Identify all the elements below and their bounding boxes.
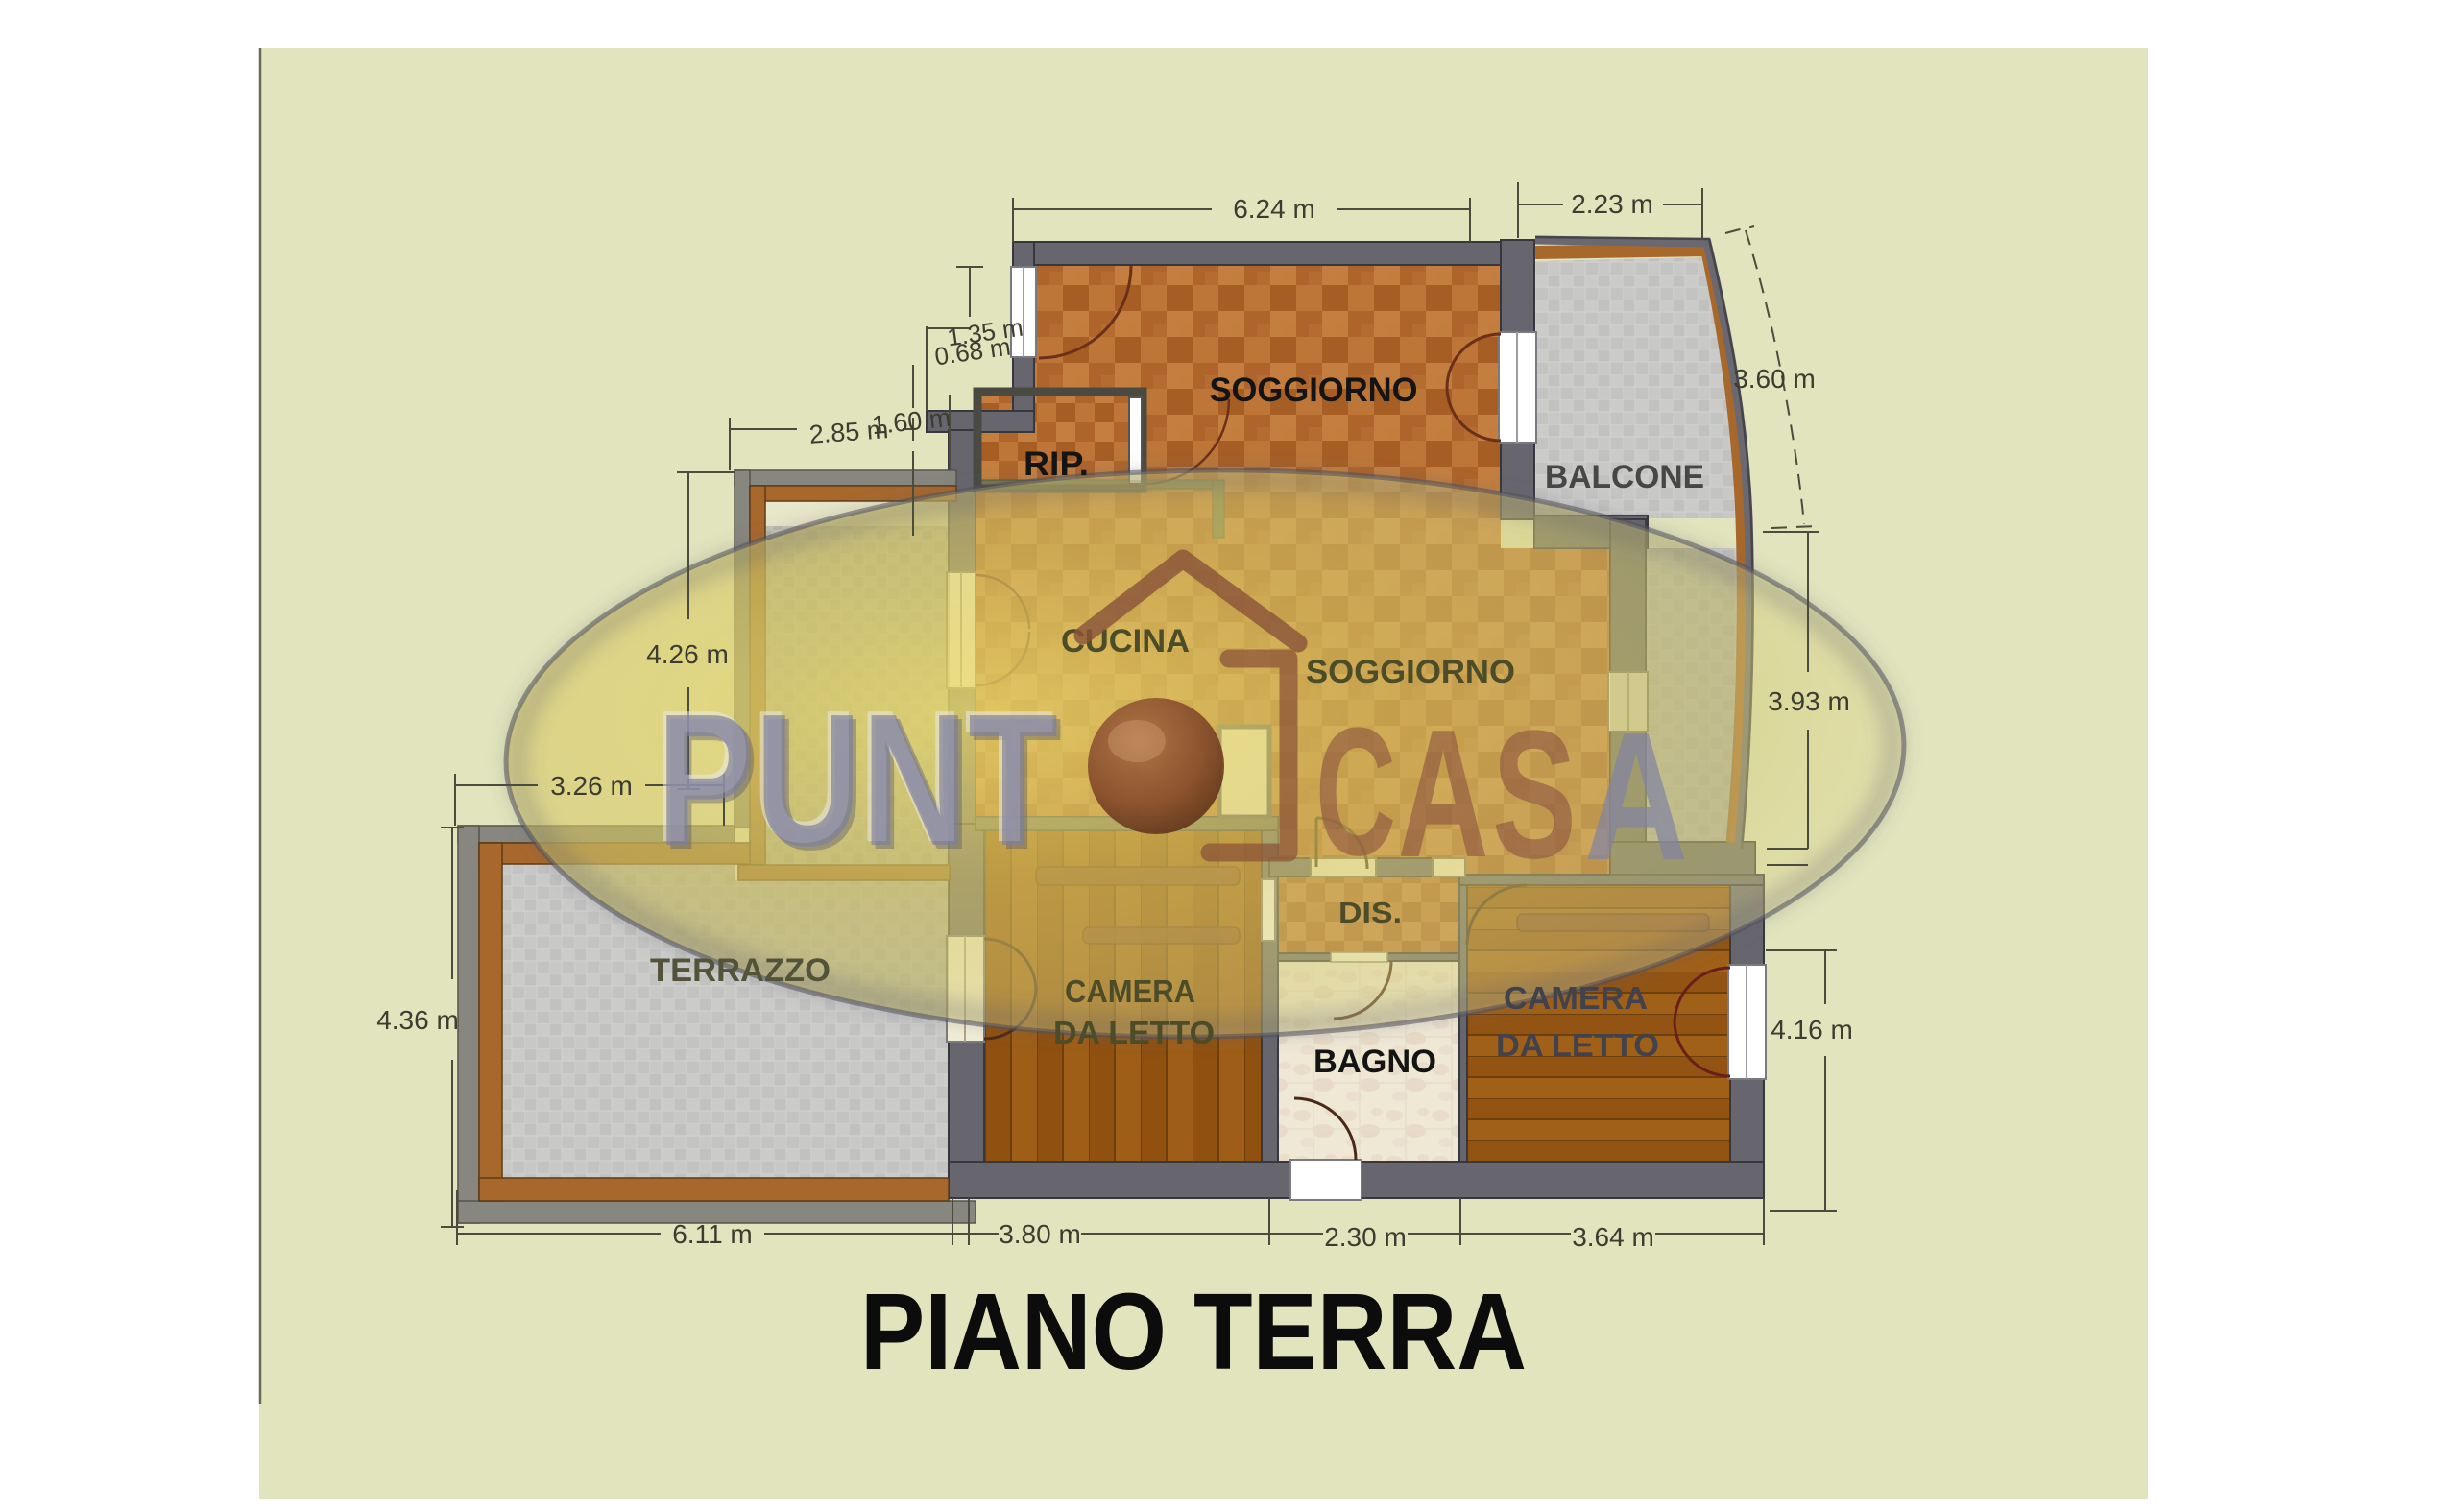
- svg-text:RIP.: RIP.: [1024, 445, 1089, 483]
- svg-text:4.36 m: 4.36 m: [376, 1005, 459, 1035]
- svg-text:DIS.: DIS.: [1338, 896, 1402, 929]
- svg-text:PUNT: PUNT: [657, 675, 1058, 885]
- svg-text:3.60 m: 3.60 m: [1733, 364, 1816, 394]
- svg-text:DA LETTO: DA LETTO: [1053, 1015, 1215, 1050]
- svg-text:A: A: [1398, 692, 1489, 896]
- svg-text:BAGNO: BAGNO: [1313, 1044, 1436, 1080]
- svg-text:3.93 m: 3.93 m: [1768, 686, 1850, 716]
- svg-text:S: S: [1492, 693, 1577, 897]
- svg-text:BALCONE: BALCONE: [1545, 459, 1704, 495]
- svg-text:SOGGIORNO: SOGGIORNO: [1306, 654, 1515, 690]
- svg-text:3.64 m: 3.64 m: [1572, 1222, 1654, 1252]
- svg-text:C: C: [1315, 690, 1396, 894]
- svg-text:A: A: [1584, 695, 1688, 899]
- svg-text:2.23 m: 2.23 m: [1571, 189, 1653, 219]
- svg-text:3.26 m: 3.26 m: [550, 771, 633, 801]
- svg-text:4.16 m: 4.16 m: [1771, 1015, 1853, 1044]
- svg-text:PIANO TERRA: PIANO TERRA: [860, 1271, 1527, 1392]
- svg-text:4.26 m: 4.26 m: [646, 639, 729, 669]
- svg-text:TERRAZZO: TERRAZZO: [650, 952, 831, 989]
- svg-text:CAMERA: CAMERA: [1504, 980, 1648, 1016]
- svg-text:DA LETTO: DA LETTO: [1496, 1027, 1659, 1063]
- svg-text:6.11 m: 6.11 m: [672, 1219, 753, 1249]
- svg-text:SOGGIORNO: SOGGIORNO: [1210, 372, 1418, 409]
- svg-text:CAMERA: CAMERA: [1065, 973, 1195, 1009]
- svg-text:2.30 m: 2.30 m: [1324, 1222, 1407, 1252]
- svg-text:6.24 m: 6.24 m: [1233, 194, 1315, 224]
- svg-text:3.80 m: 3.80 m: [999, 1219, 1081, 1249]
